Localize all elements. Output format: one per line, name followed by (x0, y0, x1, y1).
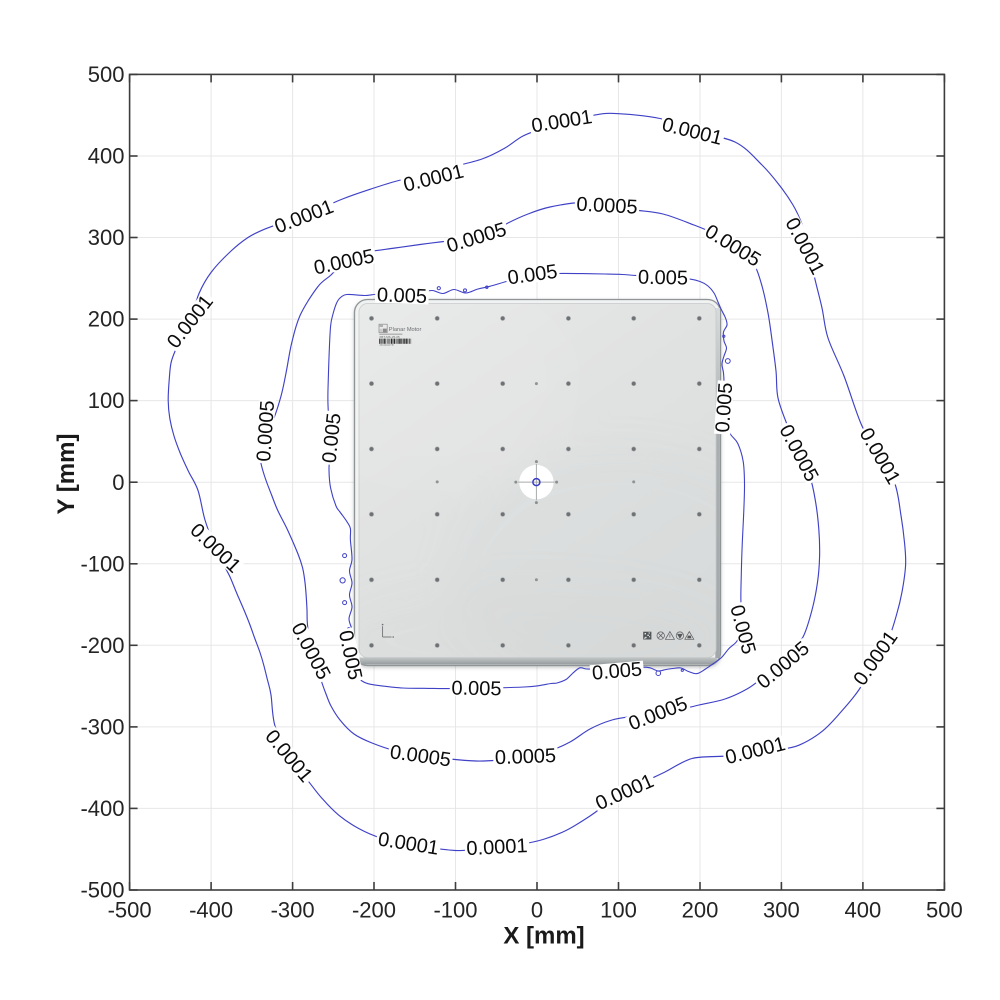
svg-text:Y [mm]: Y [mm] (53, 434, 80, 515)
svg-text:-300: -300 (271, 897, 315, 922)
svg-text:0.005: 0.005 (591, 658, 643, 684)
svg-text:300: 300 (763, 897, 800, 922)
svg-text:-200: -200 (352, 897, 396, 922)
svg-text:0.0001: 0.0001 (466, 835, 528, 860)
svg-text:-100: -100 (433, 897, 477, 922)
svg-text:0.0005: 0.0005 (253, 400, 279, 463)
svg-text:400: 400 (88, 144, 125, 169)
svg-text:-200: -200 (80, 633, 124, 658)
svg-text:500: 500 (926, 897, 963, 922)
svg-text:-500: -500 (80, 878, 124, 903)
svg-text:X [mm]: X [mm] (503, 923, 584, 950)
svg-text:100: 100 (88, 388, 125, 413)
svg-text:300: 300 (88, 225, 125, 250)
svg-text:0.005: 0.005 (638, 267, 688, 290)
svg-text:0: 0 (531, 897, 543, 922)
svg-text:0.005: 0.005 (377, 284, 428, 308)
svg-text:0: 0 (112, 470, 124, 495)
svg-text:0.0005: 0.0005 (495, 745, 557, 769)
svg-text:500: 500 (88, 62, 125, 87)
svg-text:-400: -400 (189, 897, 233, 922)
svg-text:100: 100 (600, 897, 637, 922)
svg-text:0.005: 0.005 (712, 382, 737, 433)
svg-text:XBT-MS-25-05: XBT-MS-25-05 (379, 335, 400, 339)
svg-text:0.005: 0.005 (451, 677, 501, 700)
svg-text:-400: -400 (80, 796, 124, 821)
svg-text:-100: -100 (80, 551, 124, 576)
svg-text:-300: -300 (80, 715, 124, 740)
svg-text:0.0005: 0.0005 (576, 194, 638, 219)
svg-text:400: 400 (845, 897, 882, 922)
svg-text:200: 200 (682, 897, 719, 922)
svg-text:Planar Motor: Planar Motor (389, 327, 422, 333)
svg-text:4500002TB: 4500002TB (379, 343, 394, 347)
svg-text:200: 200 (88, 307, 125, 332)
